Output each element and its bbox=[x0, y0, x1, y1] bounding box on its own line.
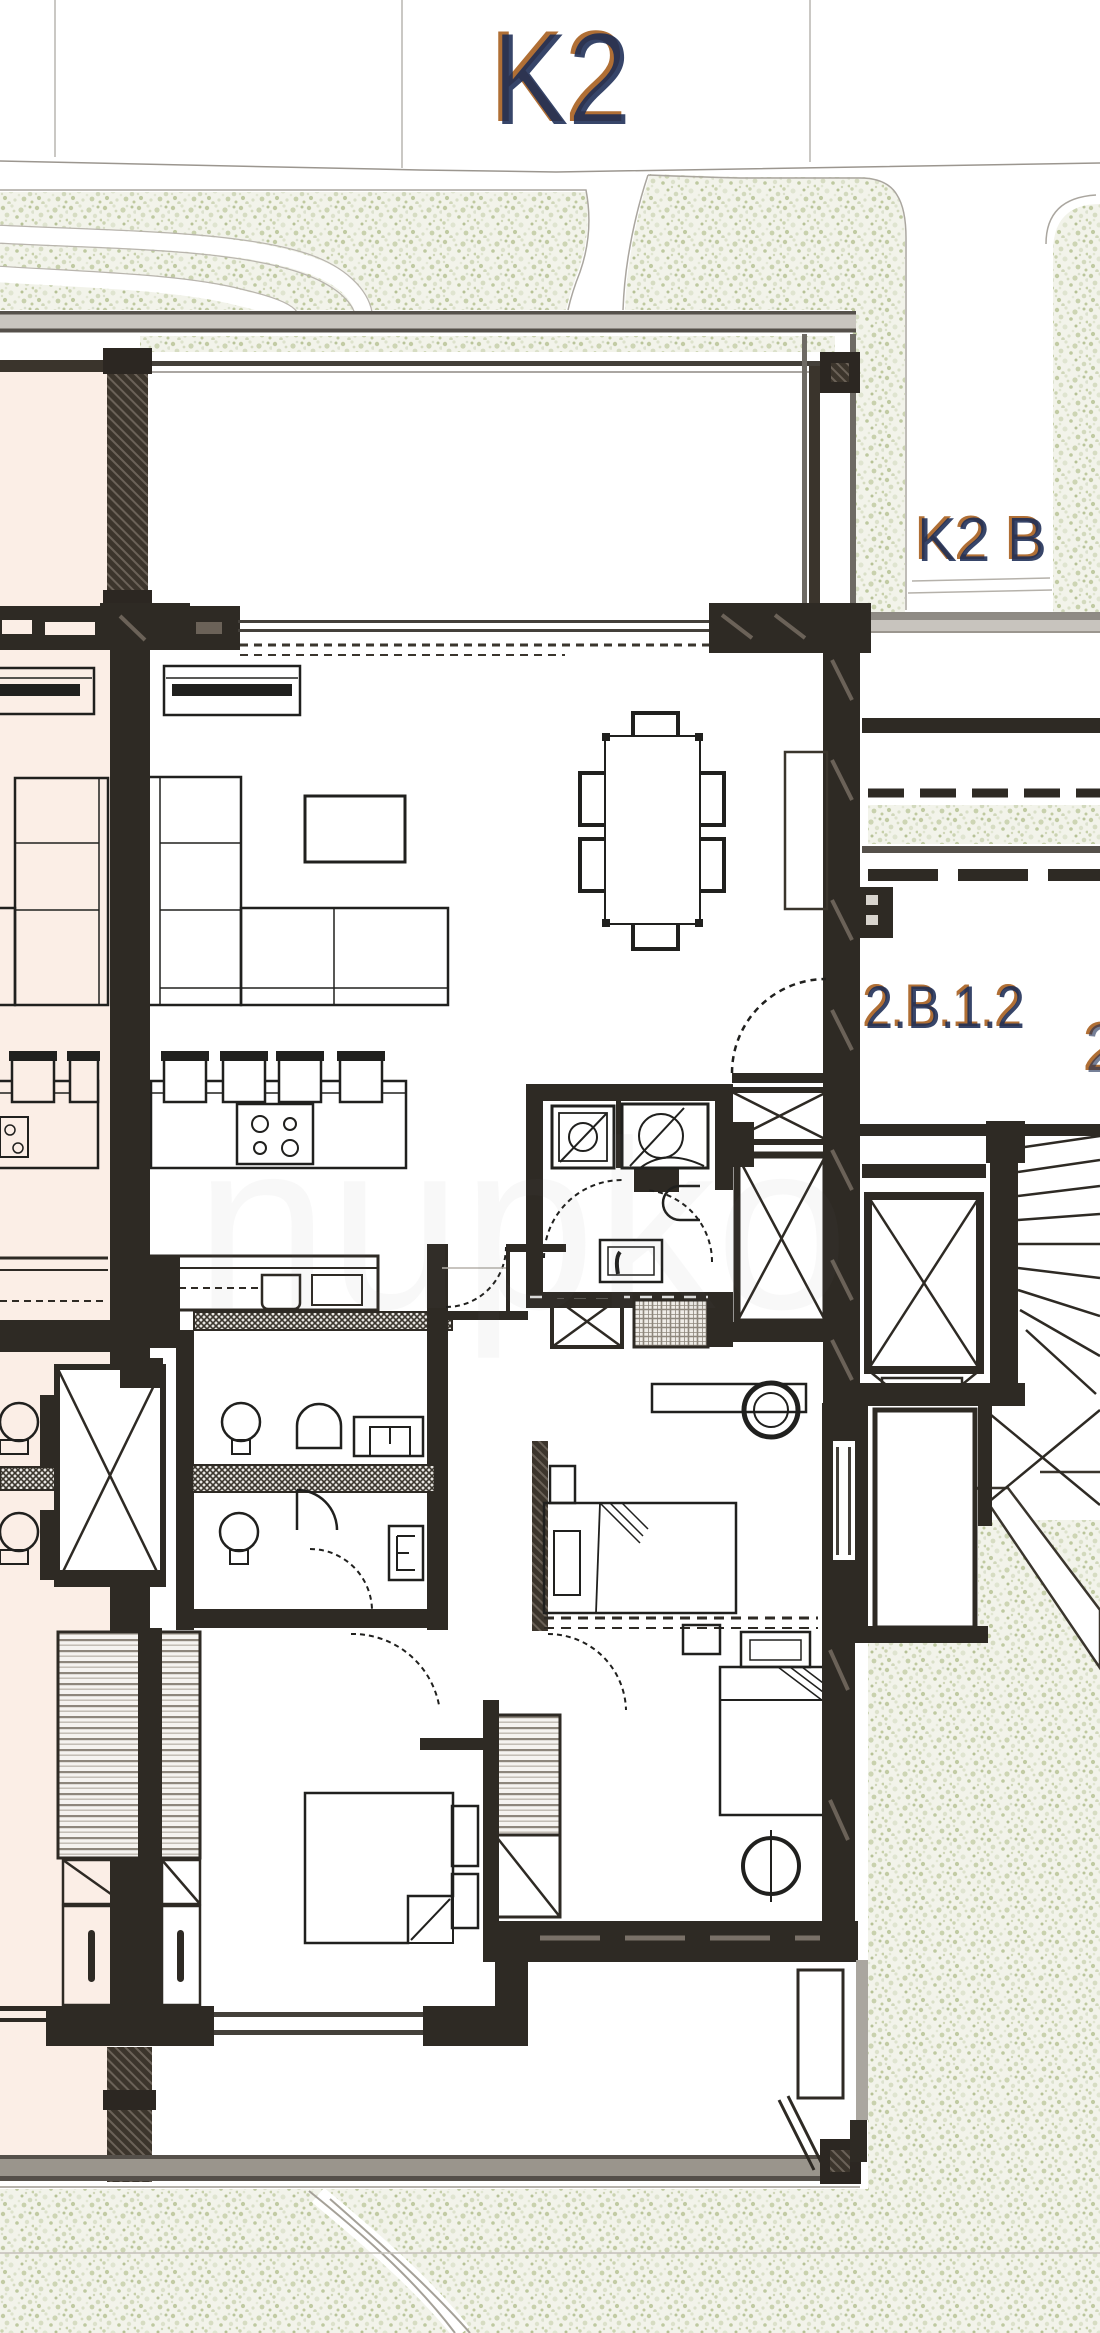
svg-text:2.B.1.2: 2.B.1.2 bbox=[865, 974, 1025, 1041]
svg-text:nupko: nupko bbox=[195, 1091, 849, 1359]
svg-text:K2 B: K2 B bbox=[917, 506, 1047, 575]
svg-text:K2: K2 bbox=[493, 6, 631, 152]
svg-text:2: 2 bbox=[1085, 1009, 1100, 1087]
